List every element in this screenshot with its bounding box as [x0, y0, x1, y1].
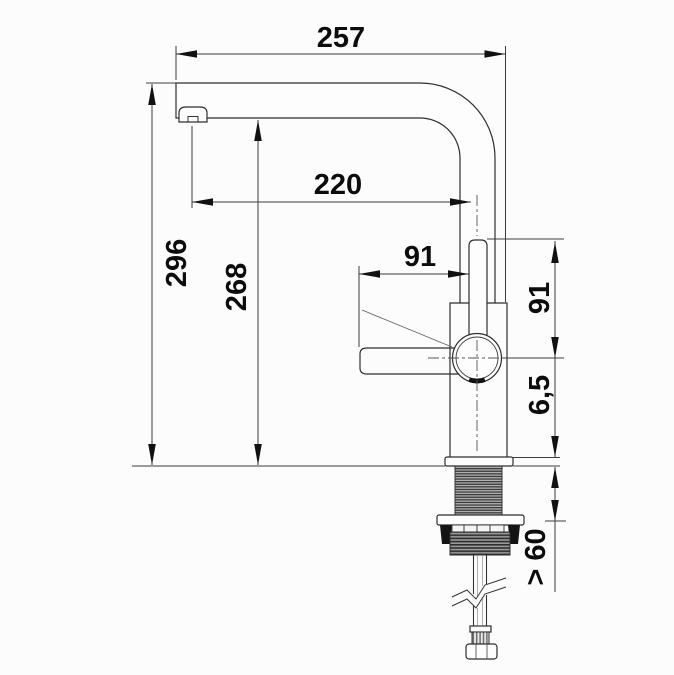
dimension-spout-overall-width: 257 [176, 22, 506, 302]
dim-label-min-60: > 60 [520, 528, 552, 585]
threaded-shank [455, 466, 502, 515]
mounting-washer [437, 515, 524, 525]
technical-drawing-page: 257 220 91 296 268 91 [0, 0, 674, 675]
dim-label-268: 268 [221, 263, 253, 311]
hose-end-nut [466, 644, 497, 659]
hose-break-symbol [452, 578, 506, 608]
mounting-nut [450, 532, 510, 555]
dim-label-91-horizontal: 91 [404, 241, 436, 273]
dimension-overall-height: 296 [146, 83, 193, 465]
hose-collar [470, 626, 491, 632]
faucet-dimension-drawing: 257 220 91 296 268 91 [0, 0, 674, 675]
collar-band [452, 525, 504, 532]
supply-hose [474, 555, 487, 626]
dim-label-6-5: 6,5 [524, 375, 556, 415]
dimension-base-plate-thickness: 6,5 [524, 358, 566, 521]
lever-raised-position-line [362, 310, 452, 347]
dim-label-296: 296 [161, 239, 193, 287]
hose-knurled-fitting [472, 632, 489, 644]
dimension-min-clearance: > 60 [520, 521, 555, 592]
dim-label-257: 257 [317, 22, 365, 54]
dimension-spout-end-to-axis: 91 [487, 239, 564, 358]
dimension-outlet-height: 268 [221, 120, 262, 465]
base-flange [445, 457, 513, 466]
dim-label-220: 220 [314, 169, 362, 201]
aerator [179, 107, 207, 122]
dimension-spout-reach: 220 [192, 126, 471, 208]
dim-label-91-vertical: 91 [524, 282, 556, 314]
riser-pipe [469, 240, 487, 336]
